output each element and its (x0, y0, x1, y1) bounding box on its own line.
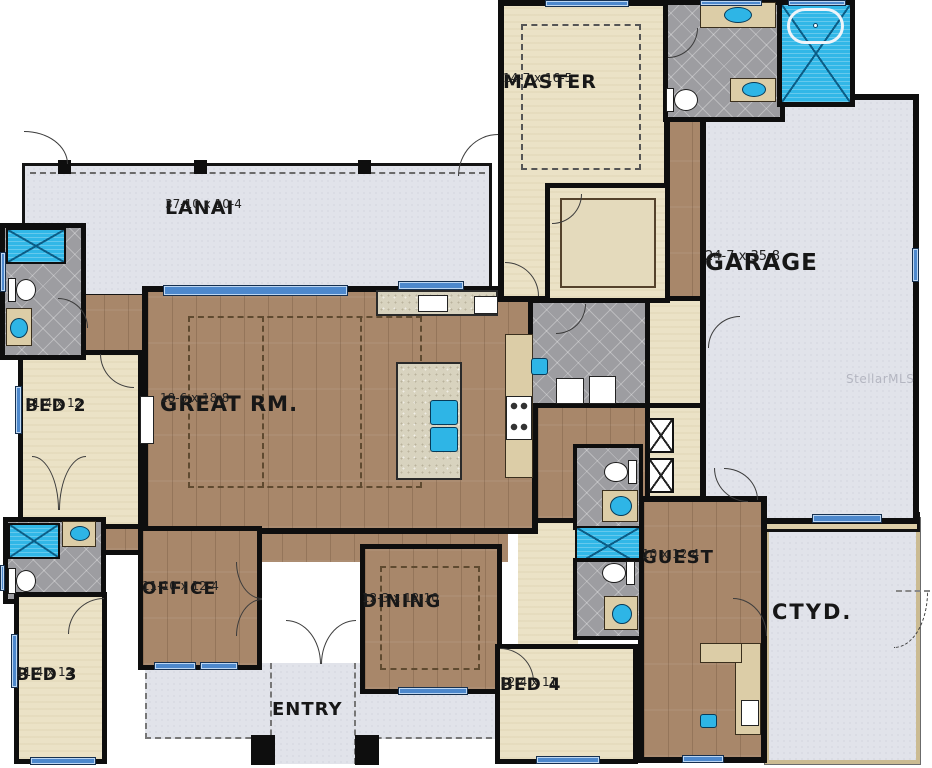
master-window (545, 0, 629, 7)
ctyd-gate-line (896, 590, 930, 592)
guest-counter-h (700, 643, 742, 663)
lanai-door-arc (24, 131, 68, 164)
great-tray-line-2 (360, 316, 362, 488)
bath2-shower (6, 228, 66, 264)
lanai-post-3 (358, 160, 371, 174)
porch-column-1 (251, 735, 275, 765)
island-sink-icon (430, 400, 458, 425)
lanai-area (22, 163, 492, 297)
mbath-window-2 (788, 0, 846, 6)
ctyd-gate-arc (894, 592, 928, 648)
bath3-toilet-icon (16, 570, 36, 592)
fridge-icon (474, 296, 498, 314)
dryer-icon (589, 376, 616, 404)
bed2-window (15, 386, 22, 434)
tub-drain-icon (813, 23, 818, 28)
bath2-sink-icon (10, 318, 28, 338)
guest-appliance-icon (741, 700, 759, 726)
office-window-2 (200, 662, 238, 670)
entry-door-arc-left (286, 620, 321, 664)
kitchen-window (398, 281, 464, 290)
watermark: StellarMLS (846, 372, 932, 386)
tv-niche (140, 396, 154, 444)
bath2-toilet-tank (8, 278, 16, 302)
bed4-window (536, 756, 600, 764)
gbath-bot-toilet-tank (626, 561, 635, 585)
lanai-post-2 (194, 160, 207, 174)
bed4-hall-patch (518, 518, 578, 650)
cooktop-icon (418, 295, 448, 312)
mbath-sink1-icon (724, 7, 752, 23)
range-icon (506, 396, 532, 440)
garage-side-window (912, 248, 919, 282)
garage-room (700, 94, 919, 524)
guest-sink-icon (700, 714, 717, 728)
gbath-bot-sink-icon (612, 604, 632, 624)
master-lanai-door-arc (458, 134, 498, 176)
gbath-top-toilet-icon (604, 462, 628, 482)
gbath-bot-toilet-icon (602, 563, 626, 583)
guest-window (682, 755, 724, 763)
entry-door-arc-right (321, 620, 356, 664)
mbath-toilet-icon (674, 89, 698, 111)
mbath-sink2-icon (742, 82, 766, 97)
dining-tray (380, 566, 480, 670)
bed3-window (30, 757, 96, 765)
laundry-sink-icon (531, 358, 548, 375)
great-slider-window (163, 285, 348, 296)
floor-plan: LANAI 37-10 x 10-4 MASTER 14-7 x 16-5 GA… (0, 0, 932, 768)
bath3-sink-icon (70, 526, 90, 541)
water-heater-icon (648, 418, 674, 453)
washer-icon (556, 378, 584, 404)
mbath-window-1 (700, 0, 762, 6)
office-window-1 (154, 662, 196, 670)
garage-rear-window (812, 514, 882, 523)
bath2-window (0, 252, 6, 292)
hvac-icon (648, 458, 674, 493)
porch-column-2 (355, 735, 379, 765)
gbath-top-sink-icon (610, 496, 632, 516)
master-bed-outline (521, 24, 641, 170)
bath3-toilet-tank (8, 568, 16, 594)
gbath-top-toilet-tank (628, 460, 637, 484)
bath3-shower (8, 523, 60, 559)
mbath-toilet-tank (666, 88, 674, 112)
dining-window (398, 687, 468, 695)
island-sink2-icon (430, 427, 458, 452)
bath3-window (0, 565, 5, 591)
bath2-toilet-icon (16, 279, 36, 301)
lanai-screen-line (30, 172, 485, 174)
lanai-hall-patch (80, 295, 150, 357)
